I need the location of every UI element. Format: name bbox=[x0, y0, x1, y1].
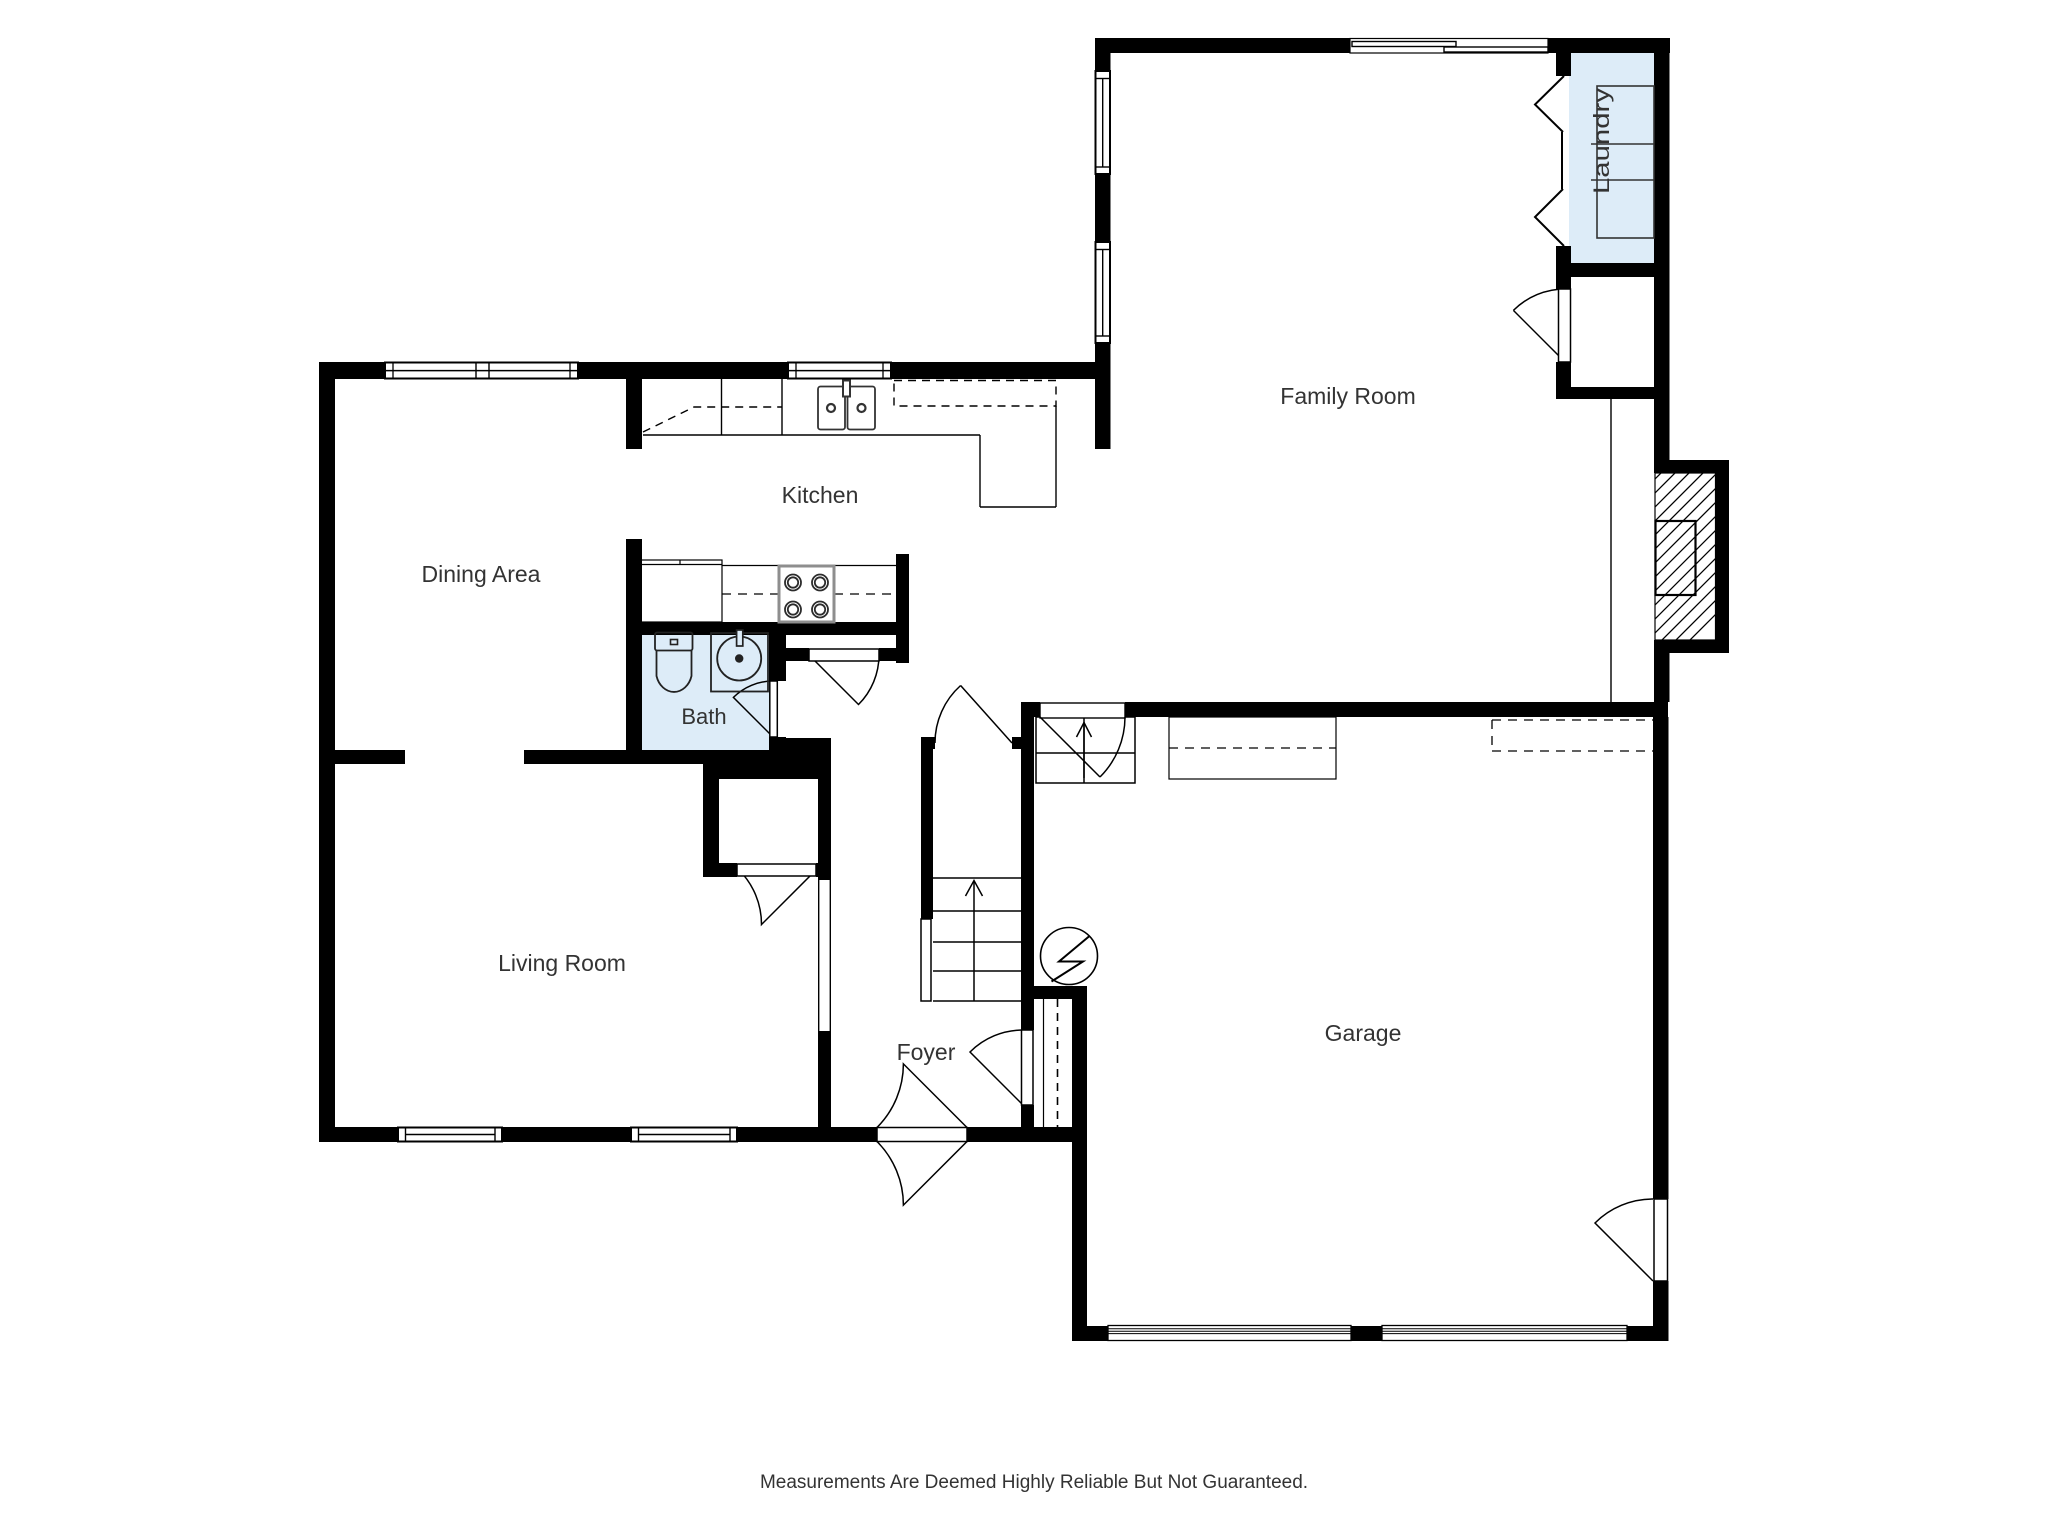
svg-text:Kitchen: Kitchen bbox=[782, 482, 859, 508]
svg-text:Dining Area: Dining Area bbox=[422, 561, 541, 587]
svg-text:Measurements Are Deemed Highly: Measurements Are Deemed Highly Reliable … bbox=[760, 1472, 1308, 1493]
svg-text:Laundry: Laundry bbox=[1589, 88, 1614, 194]
svg-text:Bath: Bath bbox=[681, 704, 726, 729]
svg-text:Foyer: Foyer bbox=[897, 1039, 956, 1065]
svg-text:Living Room: Living Room bbox=[498, 950, 626, 976]
svg-text:Family Room: Family Room bbox=[1280, 383, 1415, 409]
svg-text:Garage: Garage bbox=[1325, 1020, 1402, 1046]
